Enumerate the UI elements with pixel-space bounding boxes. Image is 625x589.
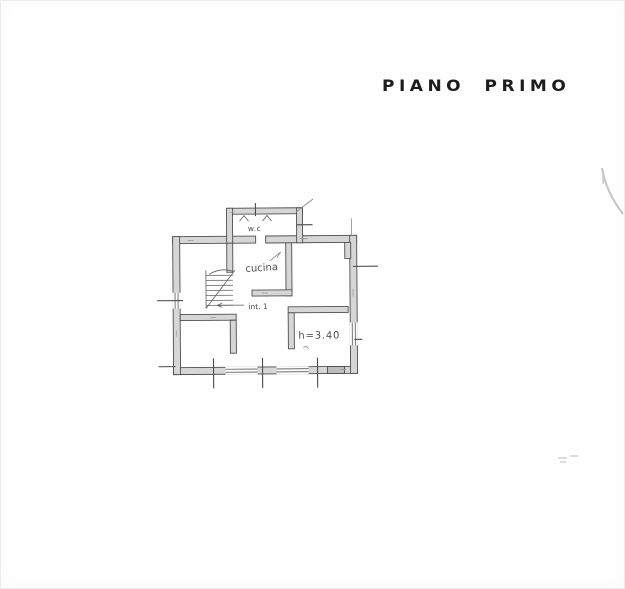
kitchen-leader-mark <box>270 252 281 261</box>
kitchen-label: cucina <box>245 262 278 275</box>
stair-arrow <box>217 303 244 307</box>
ceiling-height-label: h=3.40 <box>298 330 340 341</box>
scan-artifacts <box>296 168 623 462</box>
stair-cut-line <box>206 270 235 308</box>
staircase <box>206 270 244 309</box>
faint-specks <box>558 456 578 462</box>
wc-corner-stray-stroke <box>296 199 313 212</box>
right-edge-streak <box>602 168 623 214</box>
floor-plan-drawing: w.c cucina int. 1 h=3.40 <box>0 0 625 589</box>
wc-window-caret <box>239 216 248 222</box>
unit-label: int. 1 <box>248 302 268 311</box>
wc-label: w.c <box>248 224 262 233</box>
stray-mark <box>303 346 308 348</box>
wc-window-caret <box>262 215 271 221</box>
scanned-page: PIANO PRIMO <box>0 0 625 589</box>
